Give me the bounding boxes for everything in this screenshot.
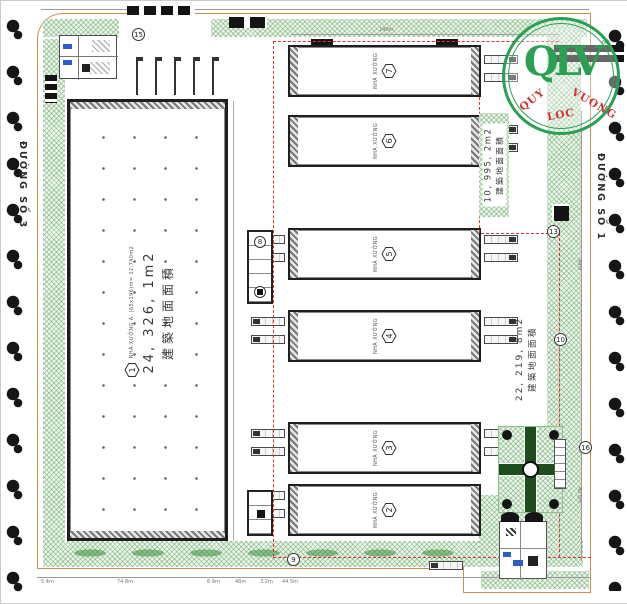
building-name: NHÀ XƯỞNG bbox=[373, 430, 379, 466]
area-cjk-label: 建築地面面積 bbox=[494, 135, 505, 195]
truck-icon bbox=[251, 429, 285, 438]
factory-building-7: NHÀ XƯỞNG 7 bbox=[288, 45, 481, 97]
utility-structure: 8 bbox=[247, 230, 273, 304]
building-dims: (65x196)m= 12,740m2 bbox=[129, 246, 135, 313]
building-name: NHÀ XƯỞNG bbox=[373, 318, 379, 354]
office-inner-wall bbox=[500, 548, 548, 549]
building-number-hexagon: 7 bbox=[381, 63, 397, 79]
area-cjk-label: 建築地面面積 bbox=[526, 326, 538, 392]
building-number-hexagon: 1 bbox=[124, 362, 140, 378]
area-label-upper-right-box: 10, 995, 2m2 建築地面面積 bbox=[479, 113, 509, 217]
parking-stack-left bbox=[45, 75, 57, 103]
office-blue-fixture bbox=[503, 552, 511, 557]
office-inner-wall bbox=[78, 36, 79, 80]
building-number-hexagon: 6 bbox=[381, 133, 397, 149]
site-plan-canvas: ĐƯỜNG SỐ 3 ĐƯỜNG SỐ 1 140m 5.4m 74.8m 6.… bbox=[0, 0, 627, 604]
landscape-strip-left bbox=[43, 39, 65, 561]
dim-label-right-2: 40.5m bbox=[576, 487, 582, 503]
truck-icon bbox=[429, 561, 463, 570]
office-inner-wall bbox=[60, 56, 118, 57]
callout-circle bbox=[254, 286, 266, 298]
area-value: 10, 995, 2m2 bbox=[483, 128, 493, 203]
factory-building-5: NHÀ XƯỞNG 5 bbox=[288, 228, 481, 280]
plaza-tree bbox=[502, 499, 512, 509]
office-dark-fixture bbox=[82, 64, 90, 72]
callout-number: 16 bbox=[581, 444, 590, 452]
hedge-row-bottom bbox=[61, 545, 481, 563]
factory-building-4: NHÀ XƯỞNG 4 bbox=[288, 310, 481, 362]
office-blue-fixture bbox=[513, 560, 523, 566]
building-label: NHÀ XƯỞNG 3 bbox=[373, 430, 397, 466]
building-label: NHÀ XƯỞNG 6 bbox=[373, 123, 397, 159]
building-name: NHÀ XƯỞNG A bbox=[129, 316, 135, 358]
building-number-hexagon: 2 bbox=[381, 502, 397, 518]
building-name: NHÀ XƯỞNG bbox=[373, 236, 379, 272]
building-number-hexagon: 4 bbox=[381, 328, 397, 344]
building-label: NHÀ XƯỞNG 7 bbox=[373, 53, 397, 89]
office-dark-fixture bbox=[506, 528, 516, 536]
callout-number: 13 bbox=[549, 228, 558, 236]
equipment-mark bbox=[257, 289, 263, 295]
office-room-shade bbox=[92, 40, 110, 52]
flag-pole bbox=[193, 57, 195, 95]
office-blue-fixture bbox=[63, 60, 72, 65]
office-canopy bbox=[525, 512, 543, 522]
flag-pole bbox=[174, 57, 176, 95]
area-value: 24, 326, 1m2 bbox=[142, 250, 157, 373]
logo-tagline-vuong: VUONG bbox=[569, 86, 618, 121]
truck-icon bbox=[484, 253, 518, 262]
truck-icon bbox=[251, 447, 285, 456]
fire-lane-dashed-line bbox=[273, 41, 274, 557]
street-trees-left bbox=[3, 3, 23, 601]
dim-label-bottom-1: 5.4m bbox=[41, 579, 54, 585]
plaza-center-circle bbox=[522, 461, 539, 478]
office-building-bottom-right bbox=[499, 521, 547, 579]
logo-tagline-quy: QUY bbox=[517, 86, 547, 113]
dim-label-bottom-5: 3.2m bbox=[260, 579, 273, 585]
callout-circle-16: 16 bbox=[579, 441, 592, 454]
callout-number: 9 bbox=[291, 556, 295, 564]
office-building-top-left bbox=[59, 35, 117, 79]
flag-pole bbox=[155, 57, 157, 95]
dim-line-top bbox=[41, 9, 589, 10]
building-number-hexagon: 5 bbox=[381, 246, 397, 262]
office-canopy bbox=[501, 512, 519, 522]
road-label-left: ĐƯỜNG SỐ 3 bbox=[17, 141, 28, 229]
area-cjk-label: 建築地面面積 bbox=[159, 264, 176, 360]
callout-number: 8 bbox=[258, 238, 262, 246]
factory-building-1: 1 NHÀ XƯỞNG A (65x196)m= 12,740m2 24, 32… bbox=[67, 99, 228, 541]
bike-rack-stack bbox=[554, 439, 566, 489]
svg-text:4: 4 bbox=[385, 333, 394, 338]
substation-box bbox=[552, 204, 569, 221]
area-value: 22, 219, 8m2 bbox=[515, 317, 525, 401]
building-1-label: 1 NHÀ XƯỞNG A (65x196)m= 12,740m2 24, 32… bbox=[117, 177, 183, 447]
qlv-logo: QLV ® QUY LOC VUONG bbox=[502, 17, 620, 135]
building-name: NHÀ XƯỞNG bbox=[373, 53, 379, 89]
svg-text:5: 5 bbox=[385, 251, 394, 256]
utility-structure bbox=[247, 490, 273, 536]
factory-building-6: NHÀ XƯỞNG 6 bbox=[288, 115, 481, 167]
area-label-lower-right: 22, 219, 8m2 建築地面面積 bbox=[476, 339, 576, 379]
dim-label-right-1: 94m bbox=[576, 259, 582, 270]
svg-text:2: 2 bbox=[385, 507, 394, 512]
area-label-upper-right: 10, 995, 2m2 建築地面面積 bbox=[482, 124, 506, 207]
parked-cars-row bbox=[229, 17, 267, 28]
dim-label-bottom-2: 74.8m bbox=[117, 579, 133, 585]
building-number-hexagon: 3 bbox=[381, 440, 397, 456]
svg-text:7: 7 bbox=[385, 68, 394, 73]
truck-icon bbox=[251, 317, 285, 326]
flag-pole bbox=[136, 57, 138, 95]
callout-circle-8: 8 bbox=[254, 236, 266, 248]
callout-circle-9: 9 bbox=[287, 553, 300, 566]
parked-cars-row bbox=[127, 6, 195, 15]
factory-building-2: NHÀ XƯỞNG 2 bbox=[288, 484, 481, 536]
office-blue-fixture bbox=[63, 44, 72, 49]
dim-ticks-mid bbox=[233, 101, 234, 541]
svg-text:6: 6 bbox=[385, 138, 394, 143]
building-name: NHÀ XƯỞNG bbox=[373, 123, 379, 159]
callout-circle-15: 15 bbox=[132, 28, 145, 41]
svg-text:3: 3 bbox=[385, 445, 394, 450]
office-dark-fixture bbox=[528, 556, 538, 566]
registered-mark: ® bbox=[601, 38, 611, 49]
callout-number: 15 bbox=[134, 31, 143, 39]
equipment-mark bbox=[257, 510, 265, 518]
road-label-right: ĐƯỜNG SỐ 1 bbox=[595, 153, 606, 241]
truck-icon bbox=[484, 235, 518, 244]
dim-label-bottom-6: 44.5m bbox=[282, 579, 298, 585]
building-label: NHÀ XƯỞNG 4 bbox=[373, 318, 397, 354]
flag-pole bbox=[212, 57, 214, 95]
svg-text:1: 1 bbox=[128, 368, 137, 373]
callout-circle-13: 13 bbox=[547, 225, 560, 238]
building-name: NHÀ XƯỞNG bbox=[373, 492, 379, 528]
dim-label-top: 140m bbox=[379, 27, 393, 33]
factory-building-3: NHÀ XƯỞNG 3 bbox=[288, 422, 481, 474]
logo-tagline-loc: LOC bbox=[546, 107, 576, 124]
truck-icon bbox=[484, 317, 518, 326]
office-room-shade bbox=[90, 62, 110, 74]
dim-label-bottom-3: 6.9m bbox=[207, 579, 220, 585]
dim-label-bottom-4: 48m bbox=[235, 579, 246, 585]
plaza-tree bbox=[549, 499, 559, 509]
building-label: NHÀ XƯỞNG 5 bbox=[373, 236, 397, 272]
plaza-tree bbox=[502, 430, 512, 440]
office-inner-wall bbox=[520, 522, 521, 580]
truck-icon bbox=[251, 335, 285, 344]
building-label: NHÀ XƯỞNG 2 bbox=[373, 492, 397, 528]
